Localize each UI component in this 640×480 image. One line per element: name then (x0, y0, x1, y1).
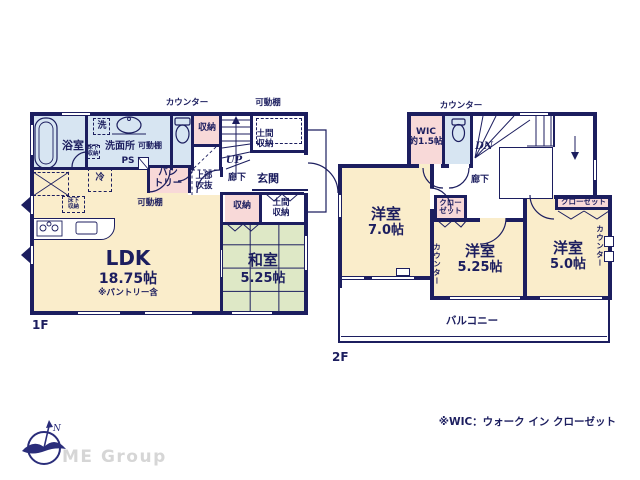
room-toilet-1f (172, 112, 193, 167)
wall (338, 164, 342, 288)
window (372, 276, 414, 280)
wall (338, 164, 411, 168)
window (232, 311, 272, 315)
hatch-box (33, 172, 69, 196)
kitchen-counter (33, 218, 115, 240)
step-line (252, 189, 308, 191)
label-storage: 収納 (222, 201, 262, 211)
label-ps: PS (114, 156, 142, 166)
label-dn: DN (470, 141, 498, 152)
wall (469, 164, 473, 168)
wall (170, 112, 173, 170)
label-up: UP (220, 155, 248, 166)
label-movable-shelf: 可動棚 (125, 142, 175, 151)
wic-note: ※WIC：ウォーク イン クローゼット (420, 414, 616, 429)
label-underfloor: 床下 収納 (63, 198, 84, 210)
window (450, 296, 520, 300)
window (338, 195, 342, 217)
entrance-door-arc (308, 163, 338, 193)
window (342, 276, 364, 280)
dn-arrowhead (571, 152, 579, 160)
floorplan-1f: カウンター 可動棚 浴室 洗 床下 収納 洗面所 可動棚 PS 収納 土間 収納… (30, 112, 340, 332)
window (62, 112, 90, 116)
label-room2: 洋室 (450, 243, 510, 260)
label-counter-vertical: カウンター (433, 243, 441, 286)
wall (593, 112, 597, 199)
wall (407, 112, 597, 116)
label-closet: クロー ゼット (435, 199, 466, 216)
label-hallway: 廊下 (461, 175, 499, 185)
stairwell-void (499, 147, 553, 199)
wall (608, 195, 612, 300)
compass-n: N (52, 424, 62, 434)
wall (220, 277, 223, 315)
wall (523, 195, 527, 300)
up-arrowhead (232, 116, 240, 124)
label-counter: カウンター (147, 99, 227, 109)
window (145, 311, 192, 315)
label-counter: カウンター (426, 102, 496, 112)
label-balcony: バルコニー (432, 316, 512, 328)
room-toilet-2f (445, 112, 473, 164)
counter-box (604, 251, 614, 262)
label-doma-storage: 土間 収納 (258, 199, 304, 218)
entrance-door-opening (304, 155, 308, 193)
floor-label-1f: 1F (32, 318, 49, 332)
compass-bird (22, 442, 66, 454)
wall (250, 150, 308, 153)
label-doma-storage: 土間 収納 (245, 130, 285, 149)
brand-text: ME Group (62, 447, 167, 467)
wall (222, 222, 308, 225)
window (520, 112, 548, 116)
label-entrance: 玄関 (246, 173, 290, 185)
wall (430, 218, 480, 222)
window (30, 246, 34, 264)
label-ldk-note: ※パントリー含 (78, 289, 178, 299)
label-washitsu-size: 5.25帖 (228, 272, 298, 287)
window (30, 125, 34, 155)
label-washer: 洗 (88, 121, 116, 131)
sliding-opening (220, 250, 223, 277)
label-counter-vertical: カウンター (596, 225, 604, 268)
label-void: 上部 吹抜 (186, 172, 222, 191)
floorplan-2f: カウンター WIC 約1.5帖 DN 廊下 クロー ゼット クローゼット 洋室 … (338, 112, 618, 362)
wall (430, 164, 434, 188)
label-fridge: 冷 (88, 173, 112, 183)
casement-window-icon (21, 247, 30, 263)
wall (407, 164, 419, 168)
label-closet: クローゼット (557, 198, 610, 206)
counter-box (396, 268, 410, 276)
label-pantry: パン トリー (148, 168, 188, 189)
floorplan-page: カウンター 可動棚 浴室 洗 床下 収納 洗面所 可動棚 PS 収納 土間 収納… (0, 0, 640, 480)
wall (445, 164, 449, 168)
wall (191, 112, 194, 170)
wall (220, 192, 308, 195)
window (593, 160, 597, 180)
wall (191, 144, 222, 147)
window (540, 296, 602, 300)
label-room3: 洋室 (538, 240, 598, 257)
window (30, 196, 34, 214)
label-room1-size: 7.0帖 (351, 224, 421, 239)
wall (304, 112, 308, 155)
balcony-rail (341, 336, 607, 337)
label-ldk: LDK (88, 247, 168, 269)
balcony-rail (338, 341, 610, 343)
casement-window-icon (21, 197, 30, 213)
label-storage: 収納 (187, 123, 227, 133)
label-movable-shelf: 可動棚 (125, 199, 175, 209)
label-movable-shelf: 可動棚 (238, 99, 298, 109)
label-wic: WIC 約1.5帖 (409, 127, 443, 147)
label-room3-size: 5.0帖 (533, 258, 603, 273)
porch-outline (308, 130, 326, 212)
balcony-rail (608, 300, 610, 343)
label-room1: 洋室 (356, 206, 416, 223)
landing-line (553, 116, 555, 147)
balcony-rail (338, 288, 340, 343)
window (304, 236, 308, 270)
label-ldk-size: 18.75帖 (78, 272, 178, 288)
label-room2-size: 5.25帖 (445, 261, 515, 276)
counter-box (604, 236, 614, 247)
window (78, 311, 120, 315)
wall (470, 112, 473, 167)
floor-label-2f: 2F (332, 350, 349, 364)
wall (555, 207, 612, 210)
label-washitsu: 和室 (233, 252, 293, 269)
